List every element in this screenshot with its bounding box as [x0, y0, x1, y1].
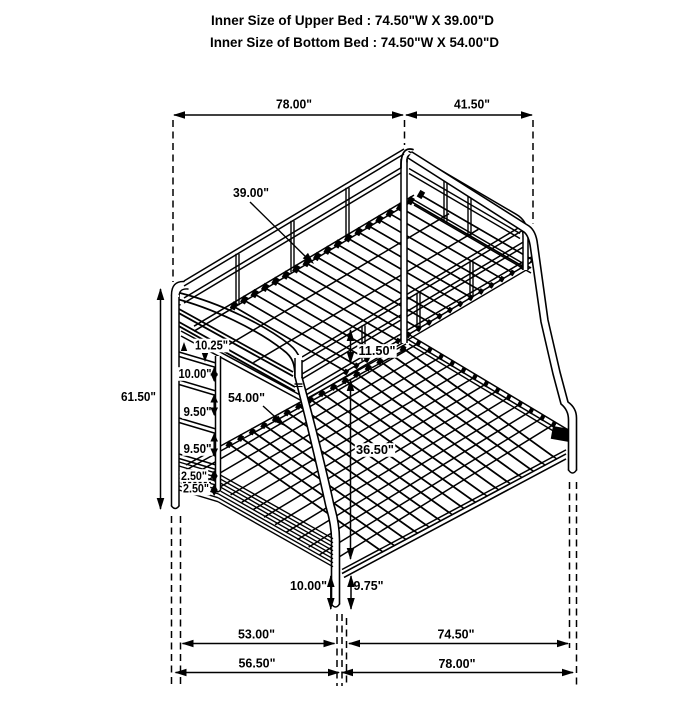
- svg-text:Inner Size of Bottom Bed : 74.: Inner Size of Bottom Bed : 74.50"W X 54.…: [210, 34, 499, 50]
- svg-text:78.00": 78.00": [276, 97, 312, 112]
- svg-text:2.50": 2.50": [183, 482, 209, 496]
- svg-text:74.50": 74.50": [438, 627, 475, 642]
- svg-text:9.50": 9.50": [184, 404, 212, 419]
- svg-text:61.50": 61.50": [121, 389, 156, 404]
- svg-text:10.00": 10.00": [290, 578, 327, 593]
- svg-text:41.50": 41.50": [454, 97, 490, 112]
- svg-text:Inner Size of Upper Bed : 74.5: Inner Size of Upper Bed : 74.50"W X 39.0…: [211, 12, 494, 28]
- svg-text:54.00": 54.00": [228, 390, 265, 405]
- svg-text:9.50": 9.50": [184, 441, 212, 456]
- svg-text:78.00": 78.00": [439, 656, 476, 671]
- svg-text:56.50": 56.50": [239, 656, 276, 671]
- svg-text:36.50": 36.50": [356, 442, 394, 457]
- svg-text:11.50": 11.50": [359, 343, 396, 358]
- svg-text:10.00": 10.00": [179, 366, 212, 381]
- svg-text:9.75": 9.75": [354, 578, 384, 593]
- svg-text:39.00": 39.00": [233, 185, 269, 200]
- svg-text:10.25": 10.25": [195, 338, 228, 353]
- svg-text:53.00": 53.00": [238, 627, 275, 642]
